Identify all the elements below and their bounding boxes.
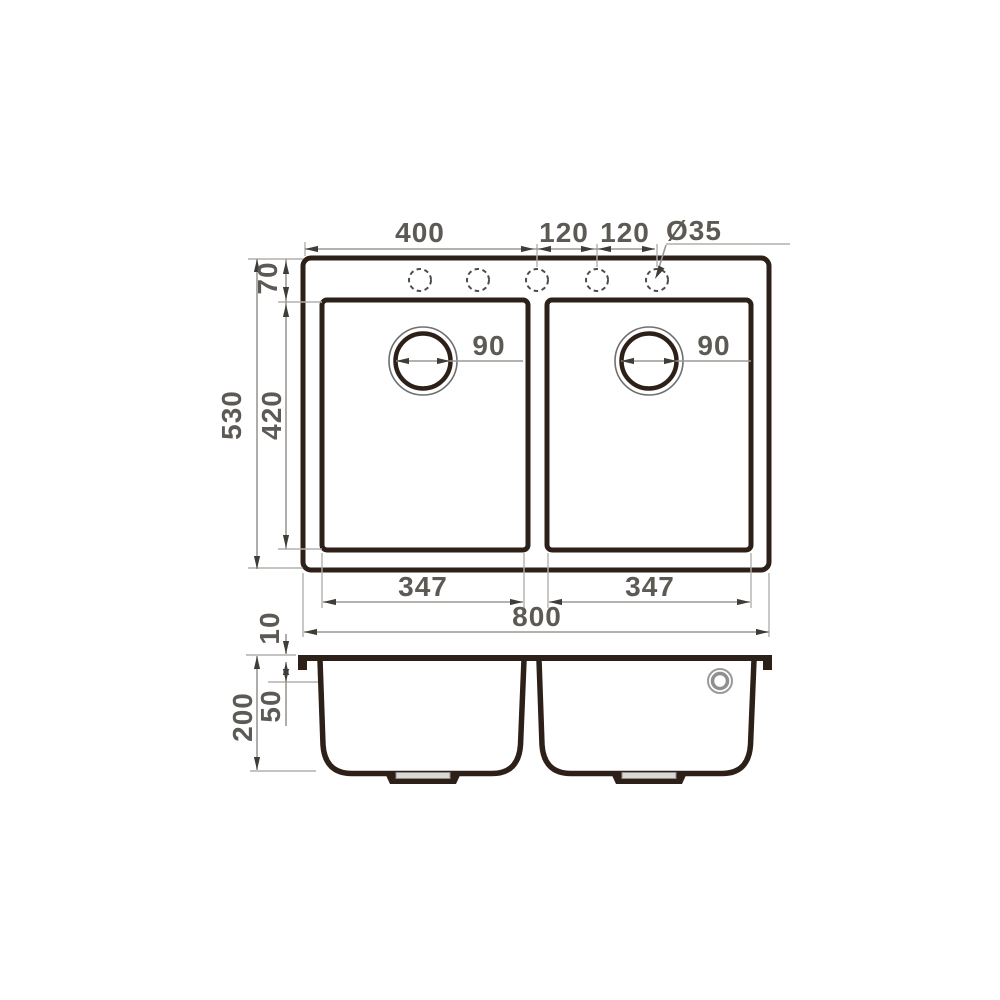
dim-70-label: 70	[252, 261, 283, 294]
dim-left-column: 530 70 420	[216, 259, 289, 569]
side-view	[298, 655, 772, 784]
right-drain-strainer	[622, 773, 676, 779]
faucet-hole-4	[586, 269, 608, 291]
dim-347-right-label: 347	[625, 571, 675, 602]
dim-10-label: 10	[254, 611, 285, 644]
drain-diameter-right-label: 90	[697, 330, 730, 361]
dim-347-left-label: 347	[398, 571, 448, 602]
extension-lines	[246, 242, 790, 771]
sink-technical-drawing-page: 400 120 120 Ø35 530 70 420	[0, 0, 1000, 1000]
deck-right-lip	[763, 655, 772, 670]
deck-left-lip	[298, 655, 307, 670]
dim-800-label: 800	[512, 601, 562, 632]
dim-200-label: 200	[227, 692, 258, 742]
faucet-hole-3	[526, 269, 548, 291]
faucet-hole-1	[409, 269, 431, 291]
top-view	[303, 258, 769, 570]
dim-420-label: 420	[256, 390, 287, 440]
dim-120-left-label: 120	[539, 217, 589, 248]
sink-rim-outline	[303, 258, 769, 570]
faucet-holes	[409, 269, 668, 291]
faucet-hole-2	[467, 269, 489, 291]
left-drain-strainer	[396, 773, 450, 779]
sink-technical-drawing: 400 120 120 Ø35 530 70 420	[0, 0, 1000, 1000]
hole-diameter-label: Ø35	[666, 215, 722, 246]
overflow-hole	[708, 669, 732, 693]
dim-400-label: 400	[395, 217, 445, 248]
deck-surface-line	[298, 655, 772, 661]
dim-120-right-label: 120	[600, 217, 650, 248]
drain-diameter-left-label: 90	[472, 330, 505, 361]
dim-side: 10 50 200	[227, 611, 289, 770]
dim-bottom: 347 347 800	[304, 571, 769, 635]
left-bowl-section	[320, 660, 524, 774]
dim-top-chain: 400 120 120	[305, 217, 655, 252]
dim-530-label: 530	[216, 390, 247, 440]
dim-hole-diameter: Ø35	[655, 215, 722, 279]
dim-50-label: 50	[255, 689, 286, 722]
